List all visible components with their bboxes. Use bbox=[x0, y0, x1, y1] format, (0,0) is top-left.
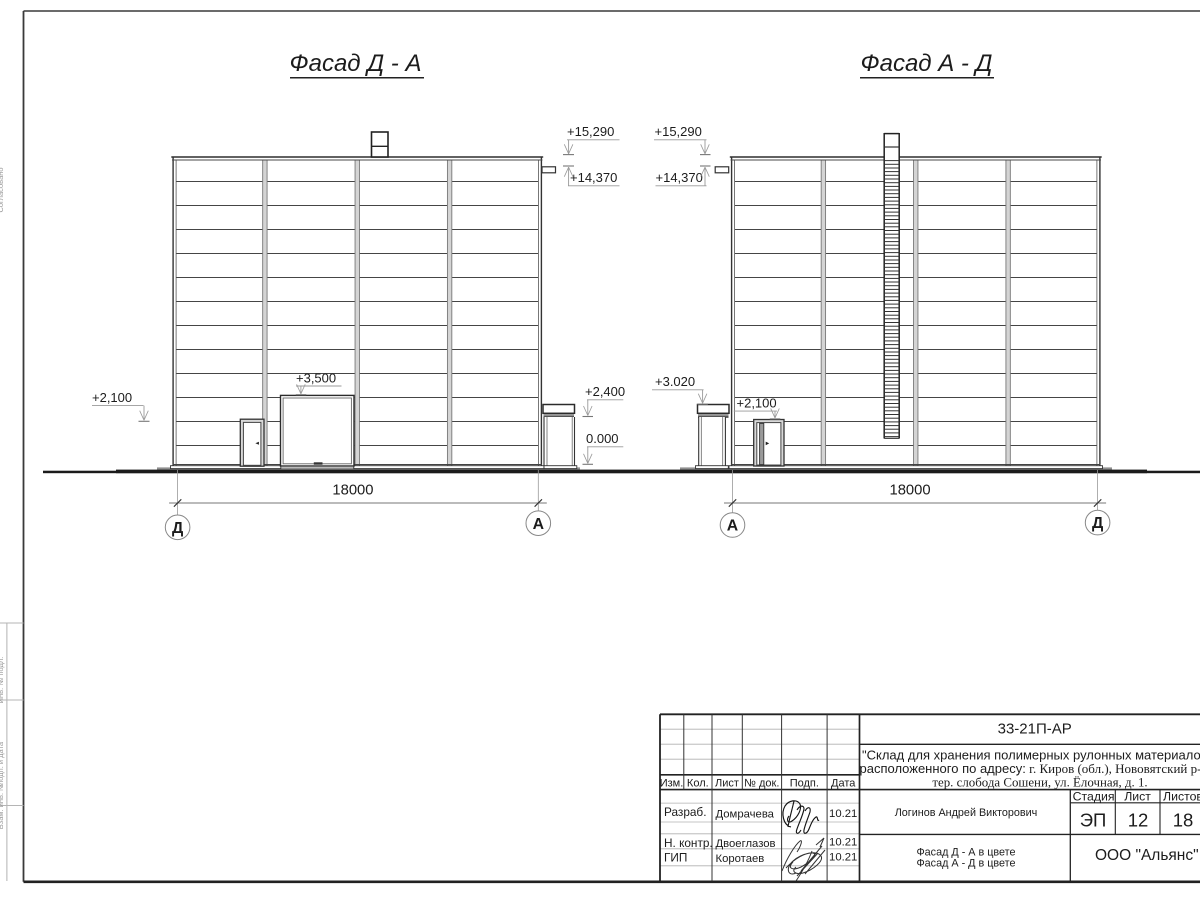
svg-text:0.000: 0.000 bbox=[586, 431, 619, 446]
svg-text:18000: 18000 bbox=[889, 483, 930, 499]
svg-text:Д: Д bbox=[172, 520, 183, 537]
svg-text:Фасад А - Д: Фасад А - Д bbox=[861, 50, 993, 77]
svg-text:Лист: Лист bbox=[715, 778, 739, 790]
svg-text:+2,400: +2,400 bbox=[585, 384, 625, 399]
svg-text:№ док.: № док. bbox=[744, 778, 779, 790]
svg-text:Д: Д bbox=[1092, 515, 1103, 532]
svg-text:+3.020: +3.020 bbox=[655, 374, 695, 389]
svg-text:А: А bbox=[533, 516, 544, 533]
svg-text:Стадия: Стадия bbox=[1073, 789, 1115, 803]
svg-text:А: А bbox=[727, 518, 738, 535]
svg-text:Дата: Дата bbox=[831, 778, 856, 790]
svg-text:ГИП: ГИП bbox=[664, 851, 687, 865]
svg-text:Изм.: Изм. bbox=[660, 778, 684, 790]
svg-text:Коротаев: Коротаев bbox=[716, 853, 765, 865]
svg-text:Инв. № подл.: Инв. № подл. bbox=[0, 657, 5, 704]
svg-text:33-21П-АР: 33-21П-АР bbox=[998, 721, 1072, 738]
svg-text:12: 12 bbox=[1128, 810, 1149, 831]
svg-text:+2,100: +2,100 bbox=[92, 390, 132, 405]
svg-text:+15,290: +15,290 bbox=[567, 124, 614, 139]
svg-text:Двоеглазов: Двоеглазов bbox=[716, 838, 776, 850]
svg-text:Фасад Д - А: Фасад Д - А bbox=[290, 50, 422, 77]
svg-text:18000: 18000 bbox=[332, 483, 373, 499]
svg-text:Листов: Листов bbox=[1163, 789, 1200, 803]
svg-text:Подп.: Подп. bbox=[790, 778, 819, 790]
svg-text:тер. слобода Сошени, ул. Ёлочн: тер. слобода Сошени, ул. Ёлочная, д. 1. bbox=[932, 776, 1147, 790]
svg-text:Фасад А - Д в цвете: Фасад А - Д в цвете bbox=[916, 858, 1015, 870]
svg-text:+14,370: +14,370 bbox=[570, 170, 617, 185]
svg-text:Лист: Лист bbox=[1124, 789, 1151, 803]
svg-text:ЭП: ЭП bbox=[1080, 810, 1107, 831]
svg-text:10.21: 10.21 bbox=[829, 836, 857, 848]
svg-text:+3,500: +3,500 bbox=[296, 370, 336, 385]
svg-text:Домрачева: Домрачева bbox=[716, 808, 775, 820]
svg-text:Логинов Андрей Викторович: Логинов Андрей Викторович bbox=[895, 807, 1038, 819]
svg-text:18: 18 bbox=[1173, 810, 1194, 831]
svg-text:Разраб.: Разраб. bbox=[664, 805, 706, 819]
svg-text:+15,290: +15,290 bbox=[655, 124, 702, 139]
svg-text:Согласовано: Согласовано bbox=[0, 167, 5, 212]
svg-text:Подп. и дата: Подп. и дата bbox=[0, 741, 5, 786]
svg-text:Взам. инв. №: Взам. инв. № bbox=[0, 783, 5, 829]
svg-text:10.21: 10.21 bbox=[829, 851, 857, 863]
svg-text:Н. контр.: Н. контр. bbox=[664, 836, 713, 850]
svg-text:+2,100: +2,100 bbox=[737, 396, 777, 411]
svg-text:ООО "Альянс": ООО "Альянс" bbox=[1095, 847, 1199, 864]
svg-text:расположенного по адресу: г. К: расположенного по адресу: г. Киров (обл.… bbox=[860, 761, 1200, 776]
svg-text:+14,370: +14,370 bbox=[656, 170, 703, 185]
svg-text:Кол.: Кол. bbox=[687, 778, 709, 790]
svg-text:10.21: 10.21 bbox=[829, 808, 857, 820]
